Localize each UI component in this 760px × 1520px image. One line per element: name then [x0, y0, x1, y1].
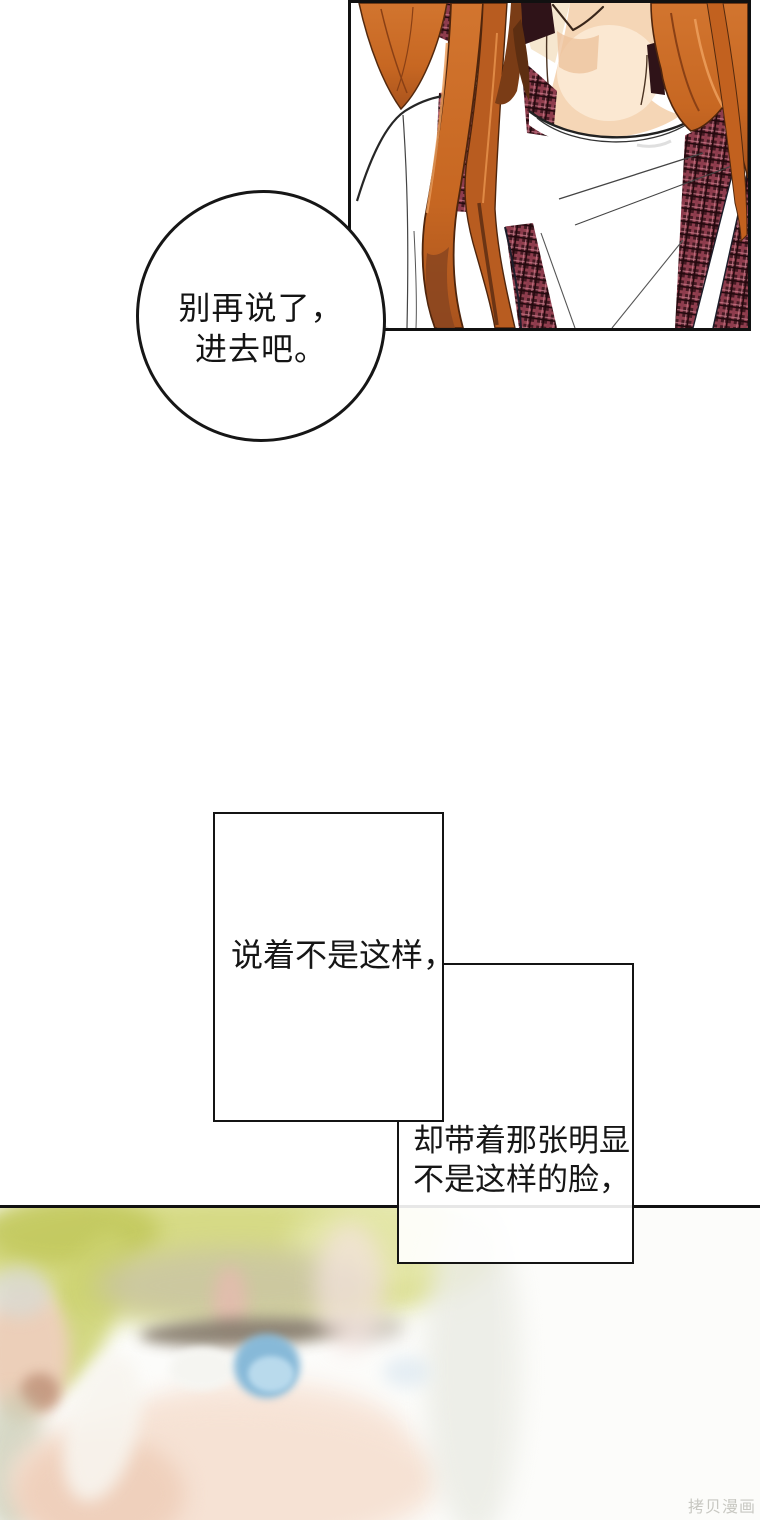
comic-page: 别再说了， 进去吧。 却带着那张明显 不是这样的脸， 说着不是这样，	[0, 0, 760, 1520]
panel-bottom: 拷贝漫画	[0, 1205, 760, 1520]
caption-2-text: 却带着那张明显 不是这样的脸，	[413, 1121, 630, 1199]
blur-eye-sclera	[170, 1348, 234, 1390]
caption-1-text: 说着不是这样，	[231, 936, 455, 975]
blur-eye-iris-light	[248, 1356, 294, 1392]
speech-line-1: 别再说了，	[139, 288, 383, 329]
blur-blue-smudge	[383, 1356, 431, 1388]
blur-pink-right	[315, 1223, 385, 1353]
caption-2-line-2: 不是这样的脸，	[413, 1160, 630, 1199]
speech-bubble: 别再说了， 进去吧。	[136, 190, 386, 442]
speech-line-2: 进去吧。	[139, 329, 383, 370]
watermark: 拷贝漫画	[688, 1493, 756, 1517]
caption-box-1: 说着不是这样，	[213, 812, 444, 1122]
speech-bubble-text: 别再说了， 进去吧。	[139, 288, 383, 370]
panel-top	[348, 0, 751, 331]
caption-1-line-1: 说着不是这样，	[231, 936, 455, 975]
top-panel-illustration	[351, 3, 748, 328]
caption-2-line-1: 却带着那张明显	[413, 1121, 630, 1160]
